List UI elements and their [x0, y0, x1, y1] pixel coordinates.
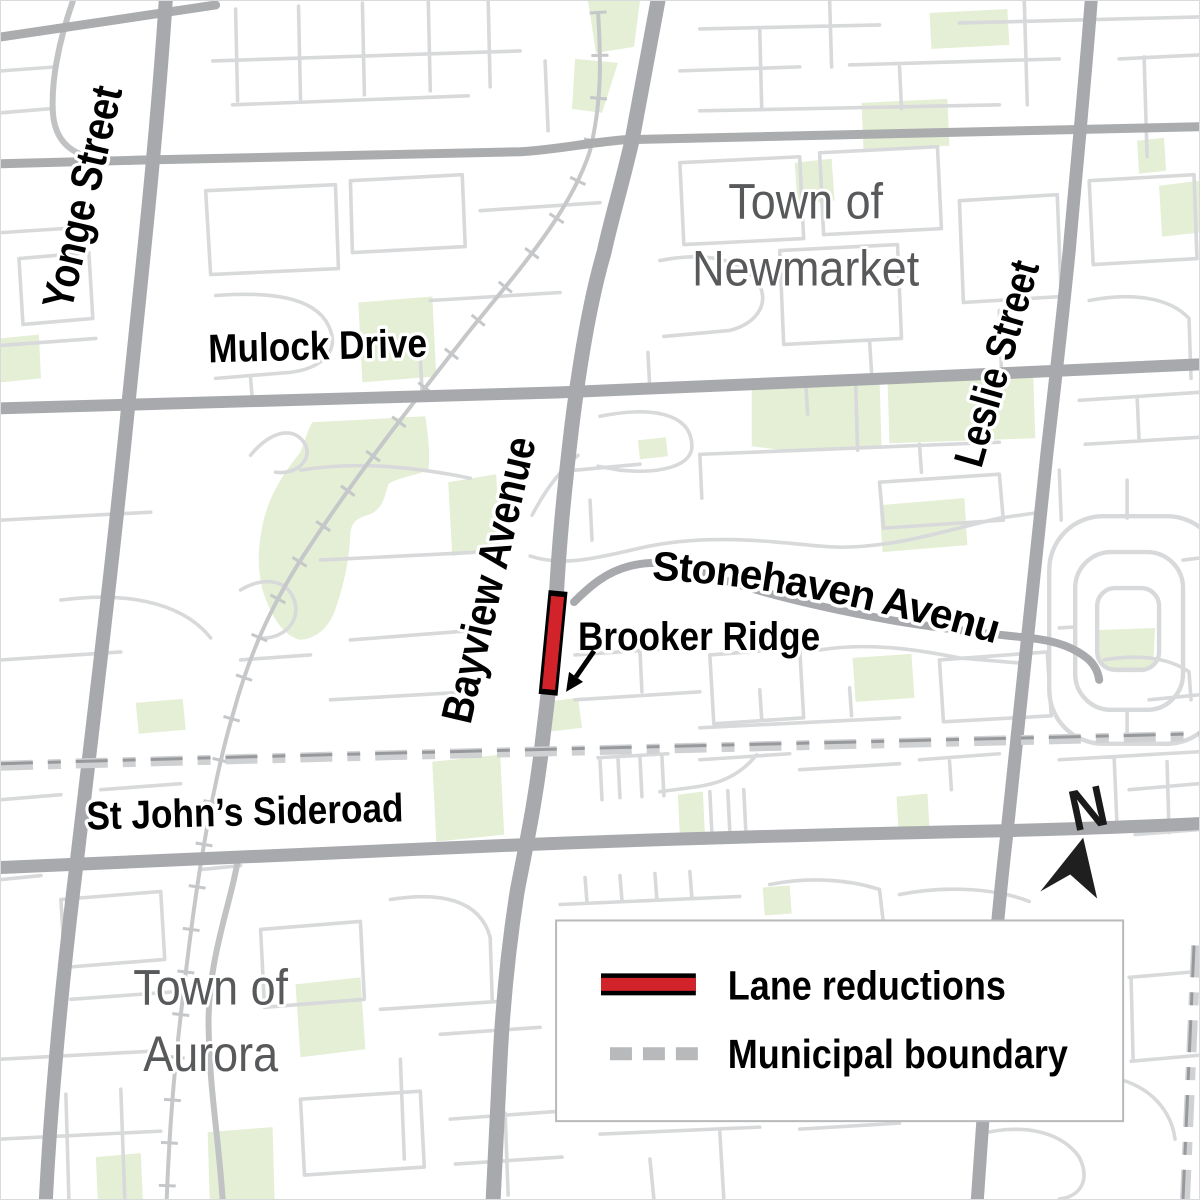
lane-reduction-red-line — [549, 597, 558, 690]
newmarket-label-line2: Newmarket — [692, 241, 919, 297]
bayview-avenue-label: Bayview Avenue — [431, 432, 545, 727]
boundary-dash-2 — [643, 1047, 665, 1060]
boundary-dash-1 — [610, 1047, 632, 1060]
aurora-label-line2: Aurora — [143, 1027, 278, 1083]
municipal-boundary-swatch — [610, 1047, 698, 1060]
boundary-dash-3 — [676, 1047, 698, 1060]
yonge-street-label: Yonge Street — [32, 81, 132, 314]
st-johns-sideroad-label: St John’s Sideroad — [86, 785, 404, 838]
ring-neighborhood-roads — [1049, 480, 1199, 744]
legend: Lane reductions Municipal boundary — [556, 920, 1123, 1121]
north-arrow-icon — [1040, 838, 1097, 899]
newmarket-label-line1: Town of — [728, 174, 884, 230]
legend-box — [556, 920, 1123, 1121]
north-crosstown-road — [1, 127, 1199, 164]
legend-label-municipal-boundary: Municipal boundary — [728, 1032, 1069, 1078]
northwest-corner-road — [1, 5, 216, 37]
aurora-label-line1: Town of — [133, 960, 289, 1016]
town-of-newmarket-label: Town of Newmarket — [692, 174, 919, 297]
legend-label-lane-reductions: Lane reductions — [728, 963, 1006, 1009]
lane-reductions-swatch-red — [601, 978, 696, 991]
municipal-boundary-east-casing — [1185, 945, 1196, 1199]
mulock-drive-label: Mulock Drive — [208, 321, 428, 371]
lane-reductions-swatch — [601, 973, 696, 995]
brooker-ridge-label: Brooker Ridge — [578, 614, 820, 659]
lane-reduction-segment — [548, 591, 558, 695]
road-map: Yonge Street Mulock Drive Bayview Avenue… — [0, 0, 1200, 1200]
